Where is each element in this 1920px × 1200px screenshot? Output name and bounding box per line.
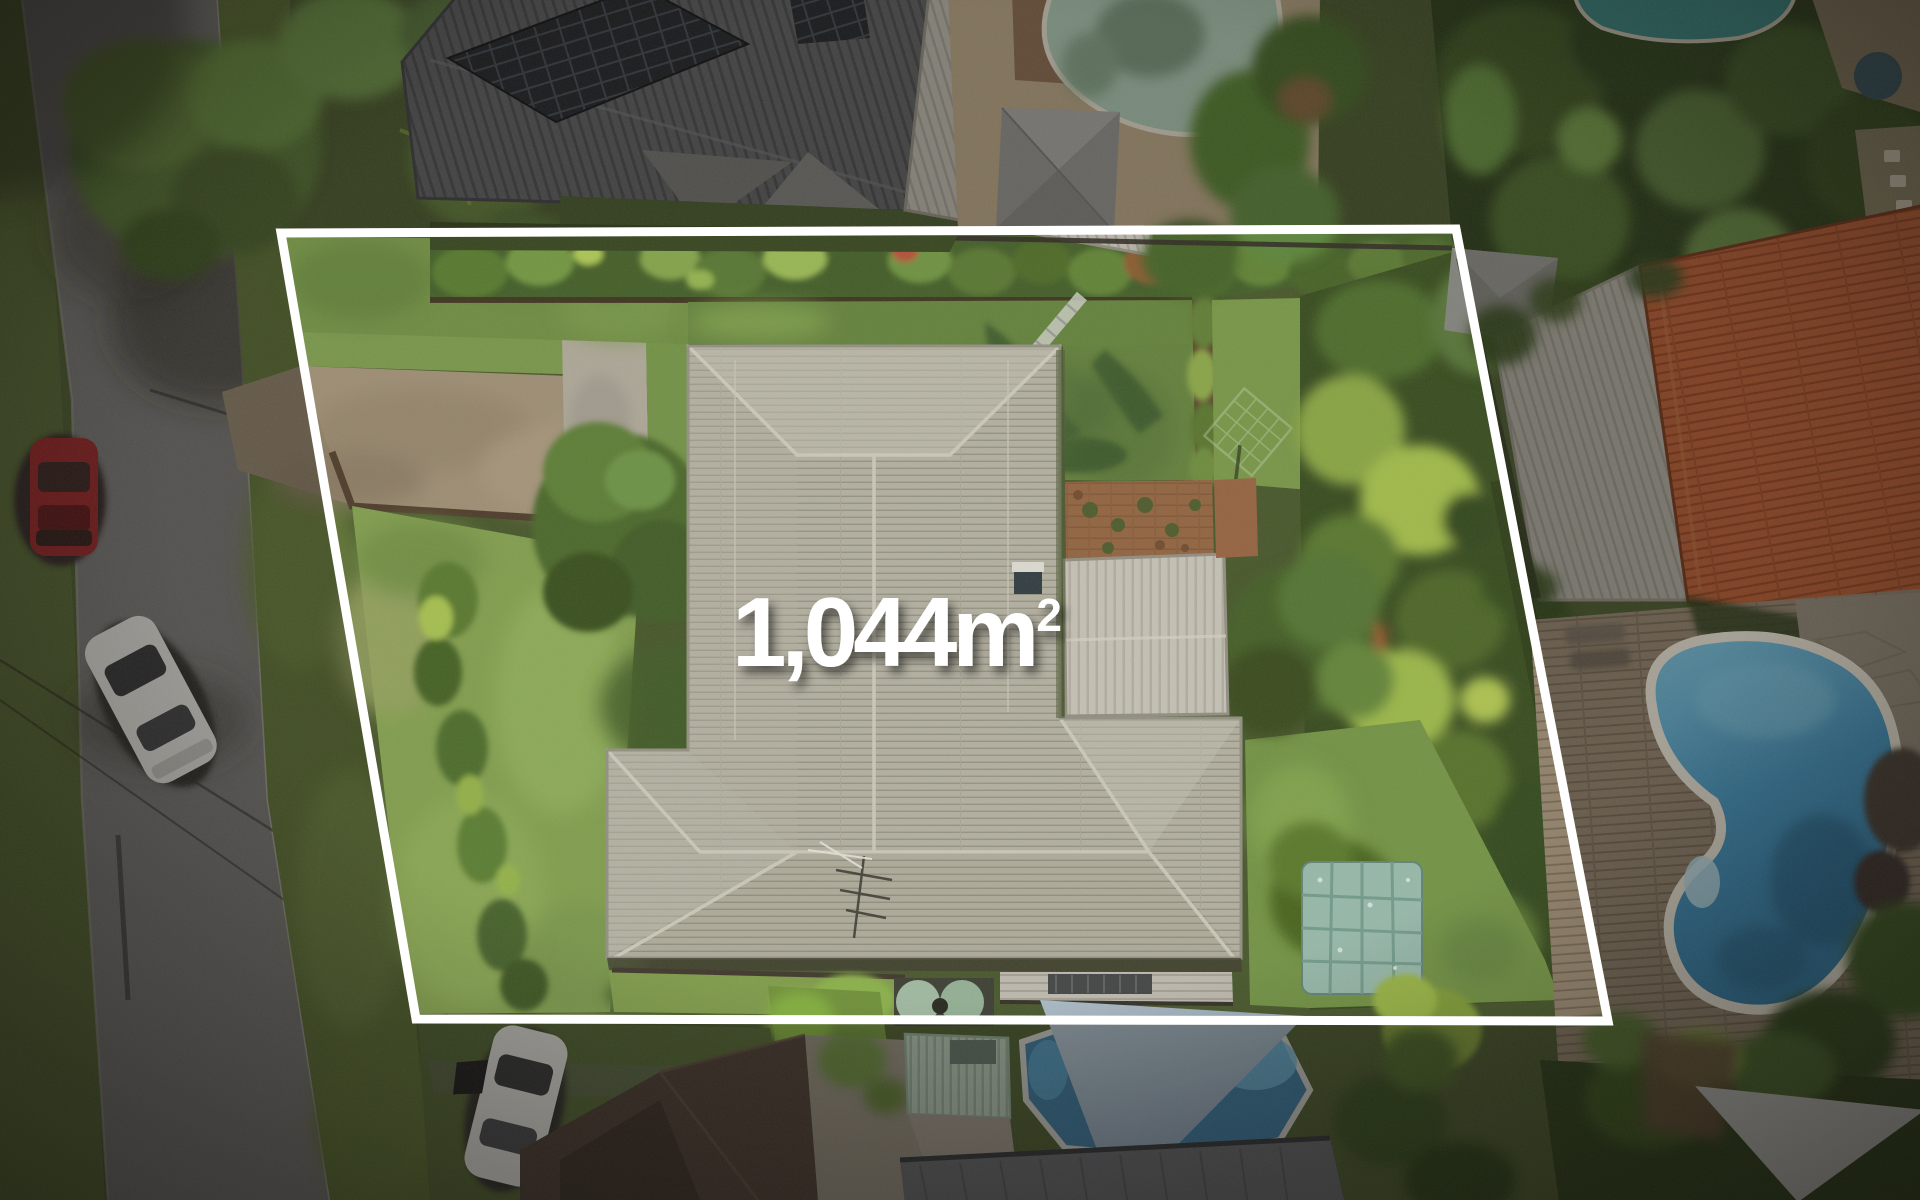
svg-text:1,044m2: 1,044m2	[732, 577, 1060, 687]
